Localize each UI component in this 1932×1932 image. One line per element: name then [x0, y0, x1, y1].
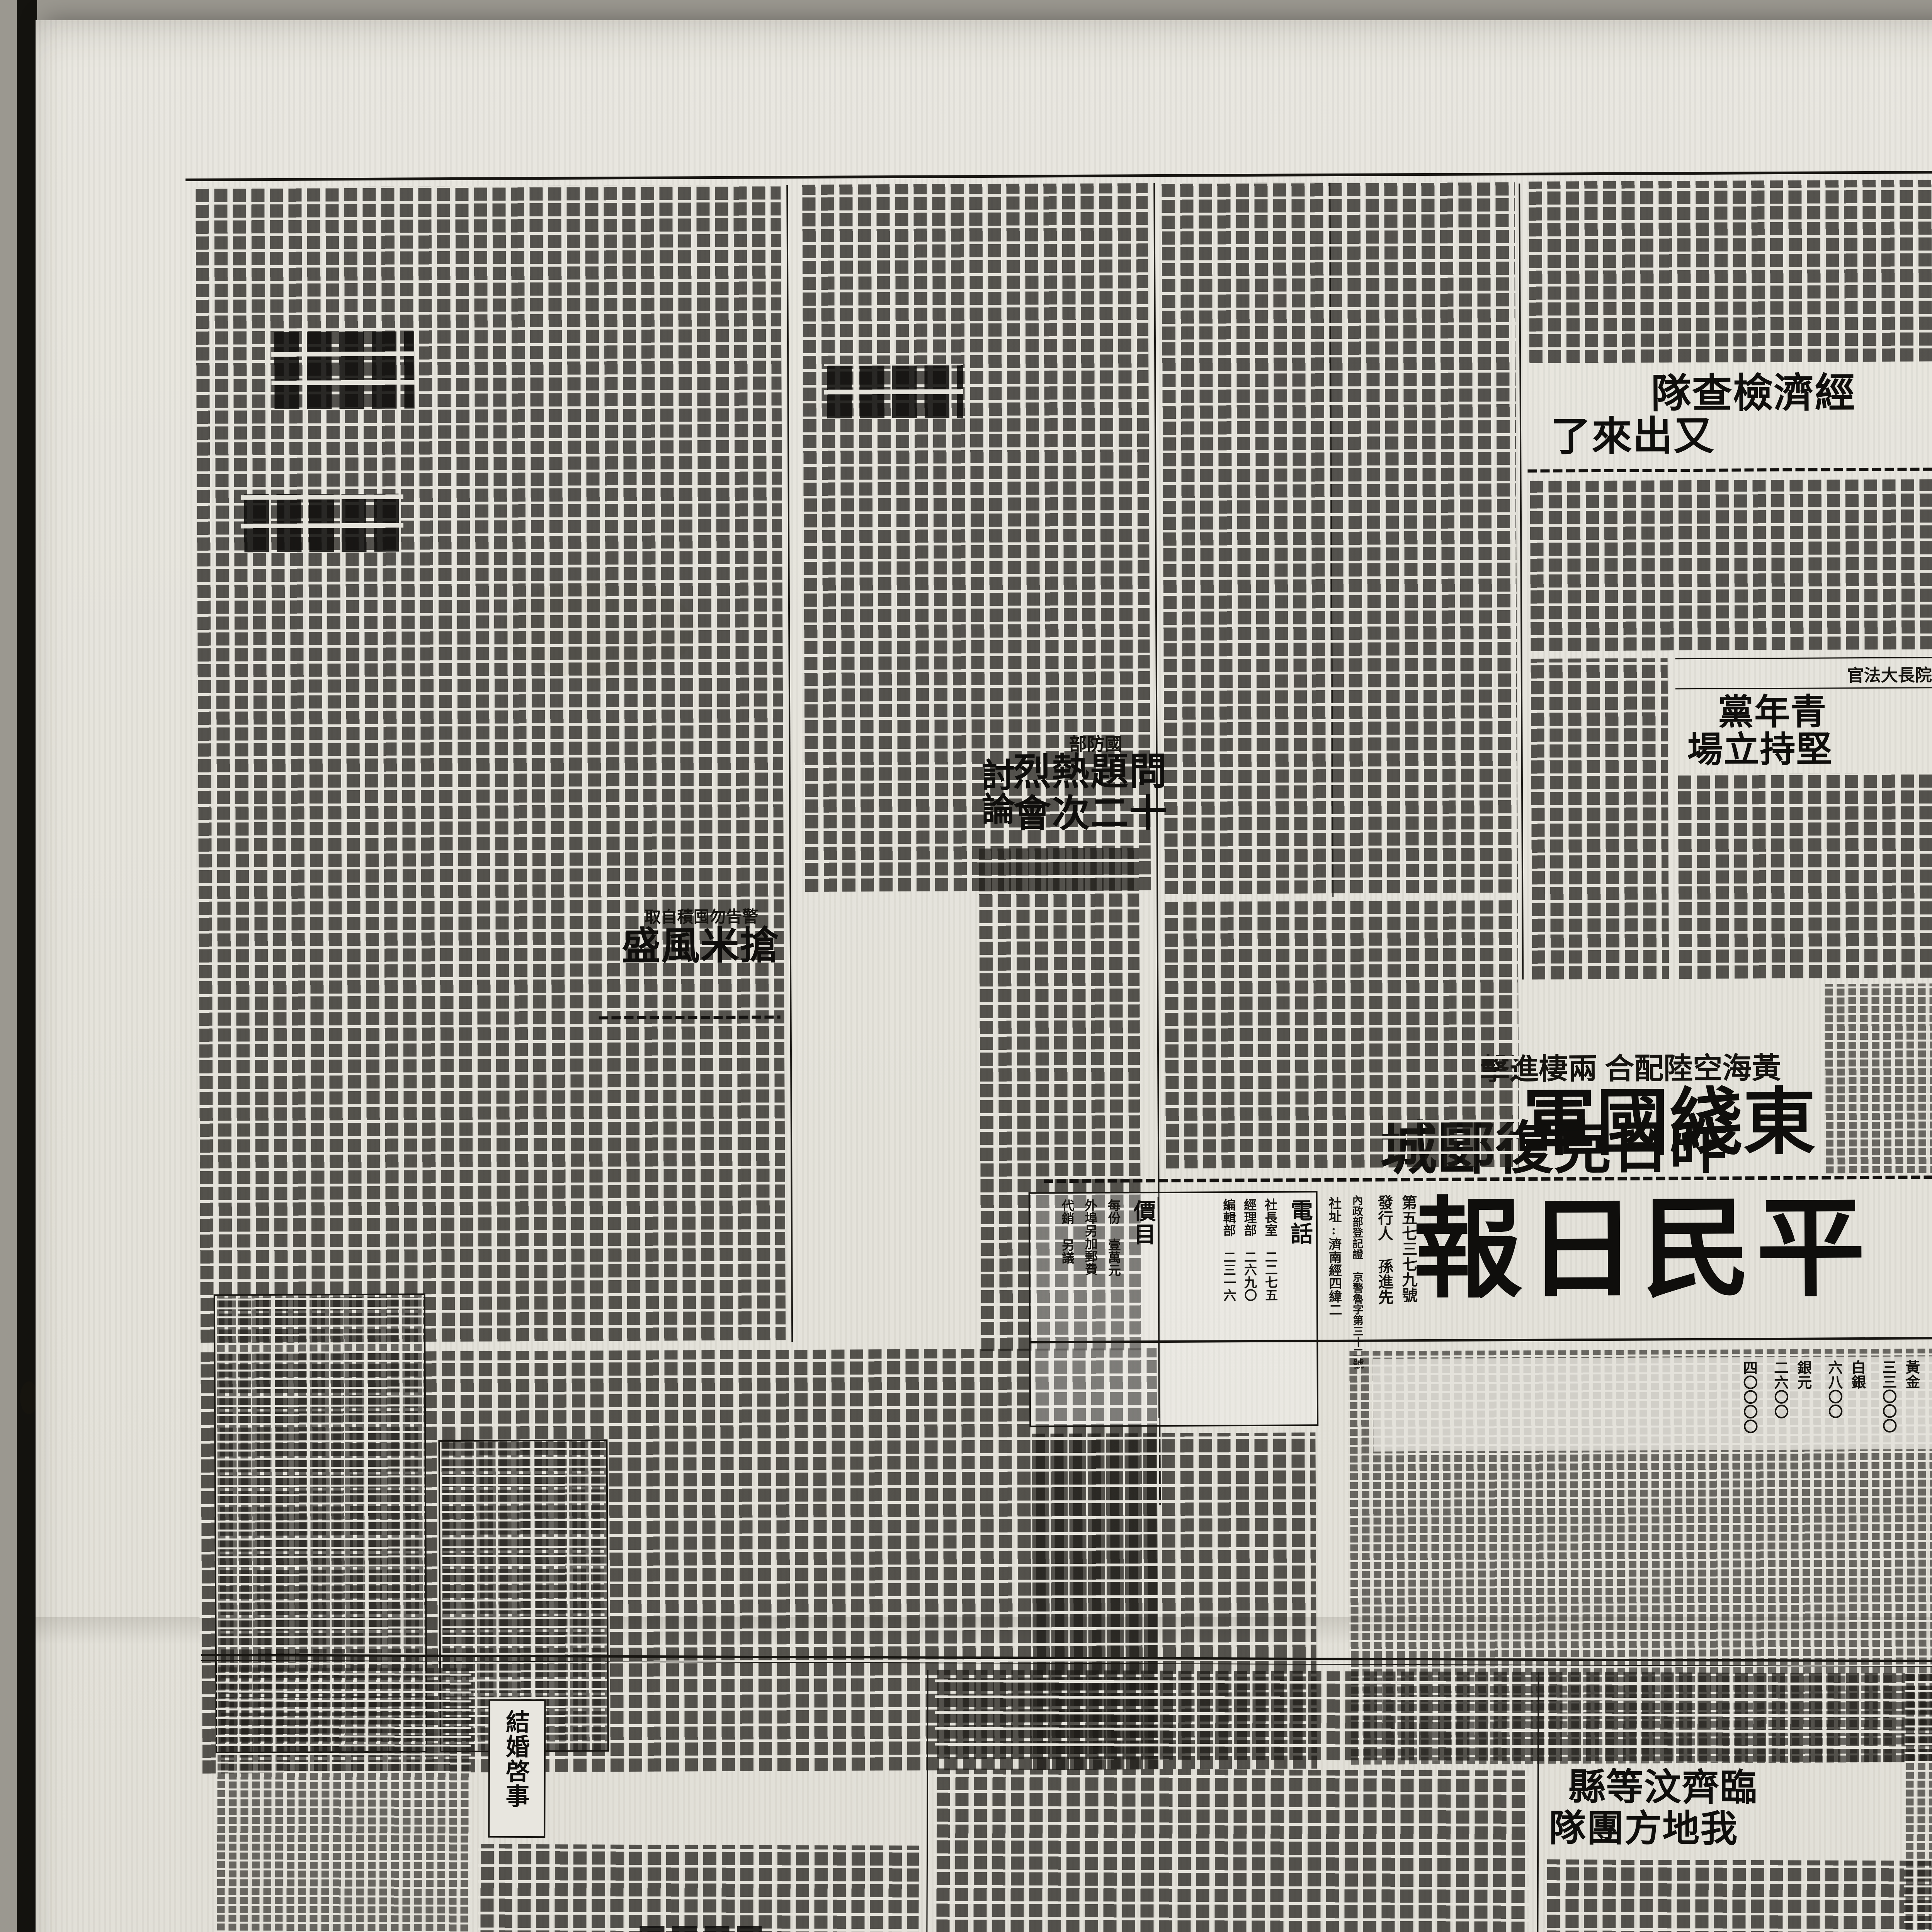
lead-subhead: 黃海空陸配合 兩棲進擊: [1480, 1044, 1781, 1088]
nameplate-publisher: 發行人 孫進先: [1373, 1194, 1396, 1304]
text-columns-block: [478, 1844, 919, 1932]
econ-inspection-headline-line1: 經濟檢查隊: [1651, 373, 1855, 414]
lead-kicker-columns: [1823, 983, 1932, 1173]
phone-entry: 編輯部 二三一六: [1219, 1198, 1238, 1301]
text-columns-block: [1529, 658, 1669, 980]
newspaper-scan: { "publication": { "name": "平民日報", "date…: [0, 0, 1932, 1932]
unread-headline-bars: [241, 494, 404, 553]
econ-inspection-headline-line2: 又出來了: [1551, 417, 1714, 457]
rice-panic-kicker: 警告勿囤積自取: [645, 904, 758, 928]
phone-price-divider: [1158, 1197, 1160, 1418]
militia-headline-line1: 臨齊汶等縣: [1568, 1769, 1758, 1806]
text-columns-block: [1528, 479, 1932, 651]
text-columns-block: [1543, 1859, 1932, 1932]
text-columns-block: [935, 1670, 1932, 1762]
lifa-headline-line1: 問題熱烈: [1013, 753, 1168, 792]
column-rule: [786, 185, 793, 1342]
nameplate-registration: 內政部登記證 京警魯字第三十二號: [1349, 1195, 1365, 1369]
wedding-notice-ad: 結婚啓事: [488, 1699, 546, 1838]
text-columns-block: [1162, 900, 1519, 1168]
column-rule: [1519, 184, 1524, 980]
text-columns-block: [931, 1769, 1529, 1932]
militia-headline-line2: 我地方團隊: [1549, 1810, 1738, 1848]
market-price: 三三〇〇〇: [1878, 1360, 1899, 1433]
unread-headline-bars: [636, 1926, 764, 1932]
price-entry: 外埠另加郵費: [1080, 1199, 1099, 1276]
text-columns-block: [1159, 182, 1518, 894]
phone-entry: 經理部 二六九〇: [1240, 1198, 1259, 1301]
youth-party-headline-line2: 堅持立場: [1687, 731, 1832, 768]
text-columns-block: [1902, 1673, 1932, 1932]
wedding-notice-title: 結婚啓事: [503, 1709, 527, 1808]
price-entry: 代銷 另議: [1057, 1199, 1076, 1264]
market-item: 白銀: [1847, 1360, 1868, 1389]
youth-party-headline-line1: 青年黨: [1718, 694, 1827, 730]
rice-panic-headline: 搶米風盛: [622, 927, 779, 966]
market-price-labels: ▲食糧 (塊)(兩) 黃金 三三〇〇〇 白銀 六八〇〇 銀元 二六〇〇 四〇〇〇…: [1373, 1356, 1932, 1452]
nameplate-address: 社址:濟南經四緯二: [1324, 1197, 1344, 1316]
scanner-left-black-edge: [17, 0, 37, 1932]
text-columns-block: [1526, 180, 1932, 363]
text-columns-block: [1676, 773, 1932, 979]
market-units: (塊)(兩): [1930, 1359, 1932, 1443]
phone-entry: 社長室 二二七五: [1260, 1198, 1279, 1301]
price-entry: 每份 壹萬元: [1104, 1199, 1122, 1276]
phone-label: 電話: [1288, 1199, 1311, 1245]
page-four: (第四版) (星期六) 中華民國三十七年六月十九日 臨齊汶等縣 我地方團隊 省府…: [196, 1638, 1932, 1932]
column-rule: [923, 1670, 929, 1932]
youth-party-kicker-box: 司法副院長大法官: [1675, 657, 1932, 690]
classifieds-columns: [215, 1667, 471, 1932]
page-one-top-rule: [185, 171, 1932, 181]
market-price: 四〇〇〇〇: [1738, 1360, 1760, 1434]
section-wavy-rule: [1527, 468, 1932, 473]
nameplate-phone-price-box: 電話 社長室 二二七五 經理部 二六九〇 編輯部 二三一六 價目 每份 壹萬元 …: [1029, 1191, 1319, 1427]
unread-headline-bars: [271, 331, 415, 409]
market-price: 二六〇〇: [1769, 1360, 1791, 1419]
lifa-headline-line2: 十二次會: [1013, 795, 1168, 833]
market-price: 六八〇〇: [1823, 1360, 1845, 1418]
page-one: (第一版) (星期六) 中華民國三十七年六月十九日 經濟檢查隊 又出來了 司法副…: [185, 158, 1932, 1623]
nameplate-title: 平民日報: [1413, 1194, 1871, 1305]
unread-headline-bars: [824, 364, 963, 418]
nameplate-issue-number: 第五七三七九號: [1397, 1194, 1420, 1303]
price-label: 價目: [1131, 1199, 1154, 1246]
market-item: 銀元: [1793, 1360, 1814, 1389]
lifa-headline-side: 討論: [978, 758, 1012, 826]
youth-party-kicker: 司法副院長大法官: [1675, 658, 1932, 687]
market-item: 黃金: [1901, 1359, 1922, 1389]
